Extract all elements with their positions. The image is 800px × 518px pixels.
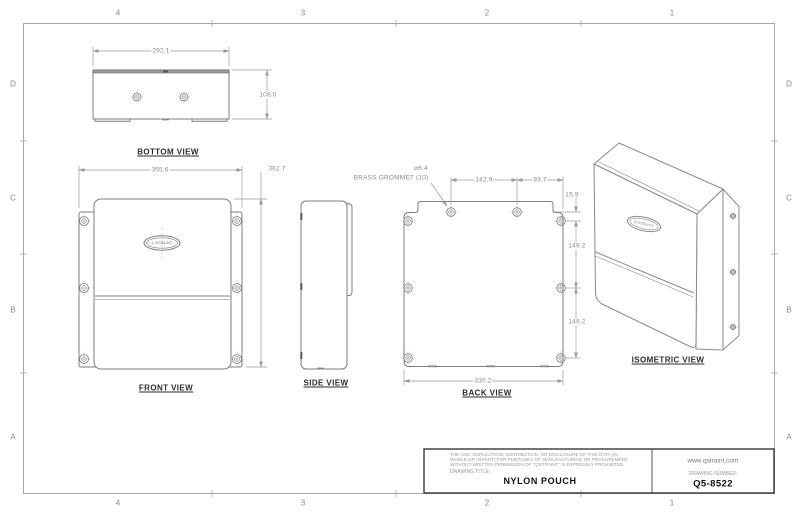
drawing-title-label: DRAWING TITLE: <box>450 469 490 475</box>
bottom-view-geometry <box>93 70 229 121</box>
drawing-number: Q5-8522 <box>693 479 733 490</box>
zone-label-bottom-2: 2 <box>485 499 489 508</box>
front-view-geometry <box>79 199 242 369</box>
view-label-isometric: ISOMETRIC VIEW <box>632 356 705 365</box>
back-view-geometry <box>404 202 563 368</box>
drawing-sheet: 4 3 2 1 4 3 2 1 D C B A D C B A 292.1 10… <box>0 0 800 518</box>
zone-label-top-3: 3 <box>301 9 305 18</box>
zone-label-left-c: C <box>10 194 16 203</box>
dim-back-width: 330.2 <box>473 378 492 385</box>
drawing-title: NYLON POUCH <box>503 476 576 486</box>
titleblock-disclaimer: THE USE, DUPLICATION, DISTRIBUTION, OR D… <box>450 452 655 468</box>
qstraint-logo-front: Q'STRAINT <box>152 241 172 245</box>
zone-label-bottom-4: 4 <box>116 499 120 508</box>
note-grommet-diameter: ⌀6.4 <box>413 164 429 172</box>
drawing-number-label: DRAWING NUMBER: <box>689 471 737 477</box>
view-label-back: BACK VIEW <box>462 389 511 398</box>
drawing-linework <box>0 0 800 518</box>
view-label-front: FRONT VIEW <box>139 384 193 393</box>
view-label-bottom: BOTTOM VIEW <box>137 148 199 157</box>
zone-label-top-1: 1 <box>670 9 674 18</box>
zone-label-left-b: B <box>10 306 15 315</box>
dim-back-upper-spacing: 149.2 <box>567 243 586 250</box>
zone-label-right-d: D <box>786 80 792 89</box>
note-brass-grommet: BRASS GROMMET (10) <box>353 175 430 182</box>
disclaimer-line-3: WITHOUT WRITTEN PERMISSION OF "Q'STRAINT… <box>450 462 655 467</box>
isometric-view-geometry <box>594 143 739 350</box>
zone-label-right-b: B <box>786 306 791 315</box>
dim-front-height: 362.7 <box>267 166 286 173</box>
dim-back-offset: 15.9 <box>564 192 579 199</box>
zone-label-bottom-3: 3 <box>301 499 305 508</box>
zone-label-top-2: 2 <box>485 9 489 18</box>
view-label-side: SIDE VIEW <box>304 379 349 388</box>
dim-back-lower-spacing: 149.2 <box>567 319 586 326</box>
zone-label-bottom-1: 1 <box>670 499 674 508</box>
dim-back-top-span: 142.9 <box>474 177 493 184</box>
bottom-view-dimensions <box>93 47 272 119</box>
zone-label-top-4: 4 <box>116 9 120 18</box>
website-url: www.qstraint.com <box>688 458 739 465</box>
zone-label-left-d: D <box>10 80 16 89</box>
zone-label-right-a: A <box>786 433 791 442</box>
zone-label-left-a: A <box>10 433 15 442</box>
dim-bottom-height: 108.0 <box>258 92 277 99</box>
zone-label-right-c: C <box>786 194 792 203</box>
dim-front-width: 355.6 <box>150 167 169 174</box>
dim-bottom-width: 292.1 <box>151 48 170 55</box>
side-view-geometry <box>300 201 352 369</box>
dim-back-top-right: 93.7 <box>532 177 547 184</box>
